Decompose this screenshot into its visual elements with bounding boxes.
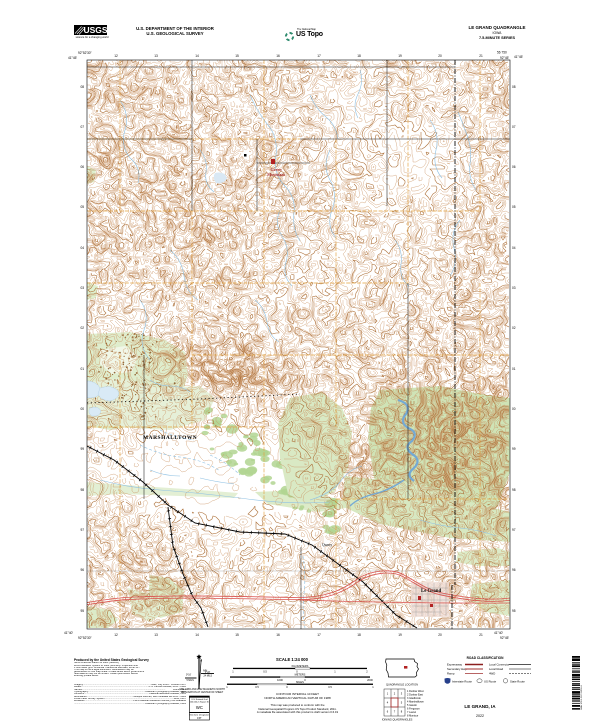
svg-text:15: 15	[235, 633, 239, 637]
svg-text:17: 17	[317, 633, 321, 637]
svg-text:0.5: 0.5	[263, 669, 267, 673]
svg-text:USGS: USGS	[84, 25, 108, 35]
svg-text:00: 00	[80, 407, 84, 411]
svg-text:92°45': 92°45'	[500, 56, 509, 60]
svg-text:06: 06	[80, 165, 84, 169]
svg-text:99: 99	[80, 447, 84, 451]
svg-text:02: 02	[80, 326, 84, 330]
svg-text:41°40': 41°40'	[64, 631, 73, 635]
svg-text:ADJOINING QUADRANGLES: ADJOINING QUADRANGLES	[382, 718, 413, 722]
svg-text:8 Montour: 8 Montour	[407, 715, 418, 718]
svg-text:8: 8	[401, 710, 403, 714]
svg-text:97: 97	[80, 528, 84, 532]
svg-text:21: 21	[479, 54, 483, 58]
svg-text:4WD: 4WD	[489, 672, 495, 676]
svg-text:05: 05	[80, 205, 84, 209]
svg-text:96: 96	[80, 568, 84, 572]
svg-text:Quarry: Quarry	[322, 543, 332, 547]
svg-text:41°45': 41°45'	[68, 56, 77, 60]
svg-text:17: 17	[317, 54, 321, 58]
svg-text:05: 05	[512, 205, 516, 209]
svg-text:U.S. National Grid: U.S. National Grid	[191, 698, 207, 701]
svg-text:7: 7	[394, 710, 396, 714]
svg-text:1: 1	[232, 669, 234, 673]
svg-text:19: 19	[398, 54, 402, 58]
svg-text:1: 1	[334, 669, 336, 673]
svg-text:24 MILS: 24 MILS	[204, 676, 213, 678]
svg-text:95: 95	[512, 609, 516, 613]
svg-text:21: 21	[479, 633, 483, 637]
svg-text:MARSHALLTOWN: MARSHALLTOWN	[143, 435, 197, 441]
svg-text:ROAD CLASSIFICATION: ROAD CLASSIFICATION	[467, 656, 504, 660]
svg-text:18: 18	[357, 633, 361, 637]
svg-text:2000: 2000	[367, 678, 373, 682]
svg-text:20: 20	[438, 633, 442, 637]
svg-text:00: 00	[512, 407, 516, 411]
svg-text:3: 3	[401, 692, 403, 696]
svg-text:DECLINATION AT CENTER OF SHEET: DECLINATION AT CENTER OF SHEET	[181, 691, 224, 694]
svg-text:Secondary Hwy: Secondary Hwy	[447, 667, 467, 671]
svg-text:98: 98	[80, 488, 84, 492]
svg-text:0.5: 0.5	[255, 685, 259, 689]
svg-text:08: 08	[512, 85, 516, 89]
svg-text:Local Road: Local Road	[489, 667, 504, 671]
svg-text:Local Connector: Local Connector	[489, 663, 509, 667]
svg-text:MILES: MILES	[296, 680, 304, 684]
svg-text:1°22': 1°22'	[205, 672, 211, 674]
svg-text:5: 5	[401, 701, 403, 705]
svg-text:5 MILS: 5 MILS	[187, 680, 195, 682]
svg-text:92°52'30": 92°52'30"	[78, 51, 92, 55]
svg-text:56 750: 56 750	[497, 51, 507, 55]
svg-text:Mountain: Mountain	[267, 172, 285, 177]
svg-text:18: 18	[357, 54, 361, 58]
svg-text:METERS: METERS	[295, 673, 306, 677]
svg-text:QUADRANGLE LOCATION: QUADRANGLE LOCATION	[386, 683, 418, 687]
svg-text:15: 15	[235, 54, 239, 58]
svg-text:1: 1	[387, 692, 389, 696]
svg-text:01: 01	[80, 367, 84, 371]
svg-text:01: 01	[512, 367, 516, 371]
svg-text:13: 13	[154, 633, 158, 637]
svg-text:04: 04	[80, 246, 84, 250]
svg-text:12: 12	[114, 54, 118, 58]
svg-text:99: 99	[512, 447, 516, 451]
svg-text:WC: WC	[196, 705, 203, 710]
svg-text:2: 2	[366, 669, 368, 673]
svg-text:0.5: 0.5	[328, 685, 332, 689]
svg-text:Interstate Route: Interstate Route	[452, 680, 472, 684]
svg-text:02: 02	[512, 326, 516, 330]
svg-text:KILOMETERS: KILOMETERS	[292, 664, 309, 668]
svg-text:2: 2	[394, 692, 396, 696]
svg-text:41°40': 41°40'	[494, 631, 503, 635]
svg-text:16: 16	[276, 633, 280, 637]
svg-text:03: 03	[80, 286, 84, 290]
svg-text:12: 12	[114, 633, 118, 637]
svg-text:98: 98	[512, 488, 516, 492]
svg-text:Ramp: Ramp	[447, 672, 455, 676]
svg-text:07: 07	[512, 125, 516, 129]
svg-text:4: 4	[387, 701, 389, 705]
svg-text:97: 97	[512, 528, 516, 532]
svg-text:20: 20	[438, 54, 442, 58]
svg-text:1: 1	[226, 685, 228, 689]
svg-text:1: 1	[372, 685, 374, 689]
svg-text:92°52'30": 92°52'30"	[78, 636, 92, 640]
svg-text:08: 08	[80, 85, 84, 89]
svg-text:State Route: State Route	[510, 680, 525, 684]
svg-text:US Route: US Route	[484, 680, 497, 684]
svg-text:Expressway: Expressway	[447, 663, 463, 667]
svg-text:07: 07	[80, 125, 84, 129]
svg-text:96: 96	[512, 568, 516, 572]
svg-text:Le Grand: Le Grand	[421, 589, 441, 594]
svg-text:04: 04	[512, 246, 516, 250]
svg-text:1000: 1000	[277, 678, 283, 682]
svg-text:15T: 15T	[197, 716, 202, 720]
svg-text:6: 6	[387, 710, 389, 714]
svg-text:95: 95	[80, 609, 84, 613]
svg-text:14: 14	[195, 54, 199, 58]
svg-text:03: 03	[512, 286, 516, 290]
svg-text:13: 13	[154, 54, 158, 58]
svg-text:41°45': 41°45'	[514, 55, 523, 59]
svg-text:06: 06	[512, 165, 516, 169]
svg-text:19: 19	[398, 633, 402, 637]
svg-text:14: 14	[195, 633, 199, 637]
svg-text:0: 0	[304, 678, 306, 682]
svg-text:0°16': 0°16'	[186, 675, 192, 677]
svg-text:92°45': 92°45'	[500, 636, 509, 640]
svg-text:0: 0	[286, 685, 288, 689]
svg-text:ISBN 978-1-397-31350-4: ISBN 978-1-397-31350-4	[581, 685, 583, 710]
svg-text:100,000-m Square ID: 100,000-m Square ID	[190, 702, 210, 704]
svg-text:16: 16	[276, 54, 280, 58]
